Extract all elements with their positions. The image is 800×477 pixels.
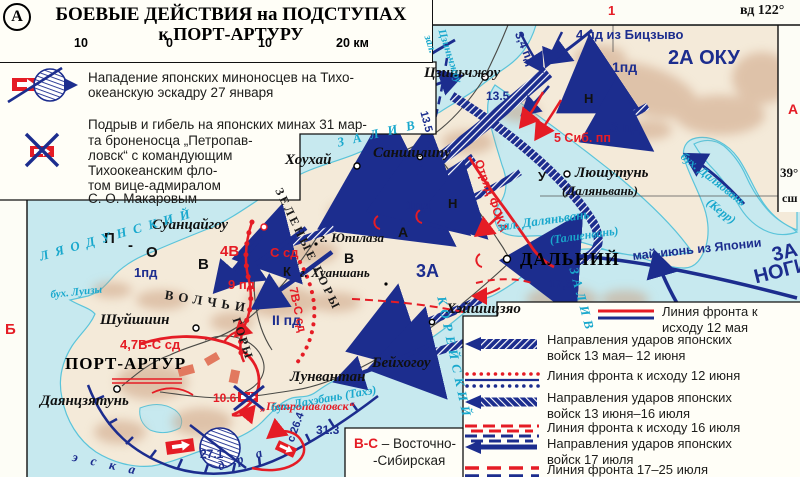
abbreviation-key: В-С [354,436,378,451]
legend-item: Направления ударов японскихвойск 13 мая–… [463,332,732,363]
legend-symbol-arrow-hatch2 [463,392,541,417]
events-icons [0,62,90,202]
legend-item-text: Линия фронта к исходу 12 июня [547,368,740,384]
legend-item: Линия фронта кисходу 12 мая [596,304,758,335]
title-box: А БОЕВЫЕ ДЕЙСТВИЯ на ПОДСТУПАХ к ПОРТ-АР… [0,0,433,63]
legend-item-text: Линия фронта кисходу 12 мая [662,304,758,335]
scale-tick-0: 0 [166,36,173,50]
legend-item-text: Направления ударов японскихвойск 13 мая–… [547,332,732,363]
legend-item: Направления ударов японскихвойск 13 июня… [463,390,732,421]
legend-symbol-front-solid [596,306,656,327]
scale-tick-10-right: 10 [258,36,272,50]
scale-tick-20km: 20 км [336,36,369,50]
mine-loss-icon [26,134,58,166]
abbreviation-note: В-С – Восточно- -Сибирская [347,428,463,477]
legend-symbol-arrow-hatch1 [463,334,541,359]
event-legend-line: Подрыв и гибель на японских минах 31 мар… [88,117,367,132]
legend-item-text: Линия фронта 17–25 июля [547,462,708,477]
event-legend-line: та броненосца „Петропав- [88,133,253,148]
sheet-badge: А [3,3,31,31]
legend-item: Линия фронта 17–25 июля [463,462,708,477]
event-legend-line: ловск“ с командующим [88,148,232,163]
event-legend-line: океанскую эскадру 27 января [88,85,273,100]
legend-item-text: Линия фронта к исходу 16 июля [547,420,740,436]
torpedo-attack-icon [8,68,78,102]
event-legend-line: Нападение японских миноносцев на Тихо- [88,70,354,85]
legend-symbol-front-longdash [463,464,541,477]
abbreviation-value-2: -Сибирская [373,453,445,470]
scale-tick-10-left: 10 [74,36,88,50]
legend-item-text: Направления ударов японскихвойск 13 июня… [547,390,732,421]
map-sheet: А БОЕВЫЕ ДЕЙСТВИЯ на ПОДСТУПАХ к ПОРТ-АР… [0,0,800,477]
map-title-line1: БОЕВЫЕ ДЕЙСТВИЯ на ПОДСТУПАХ [36,4,426,26]
event-legend-line: Тихоокеанским фло- [88,163,217,178]
abbreviation-value-1: – Восточно- [382,436,456,451]
event-legend-line: С. О. Макаровым [88,191,197,206]
abbreviation-row: В-С – Восточно- [354,436,456,453]
legend-symbol-arrow-solid [463,438,541,461]
